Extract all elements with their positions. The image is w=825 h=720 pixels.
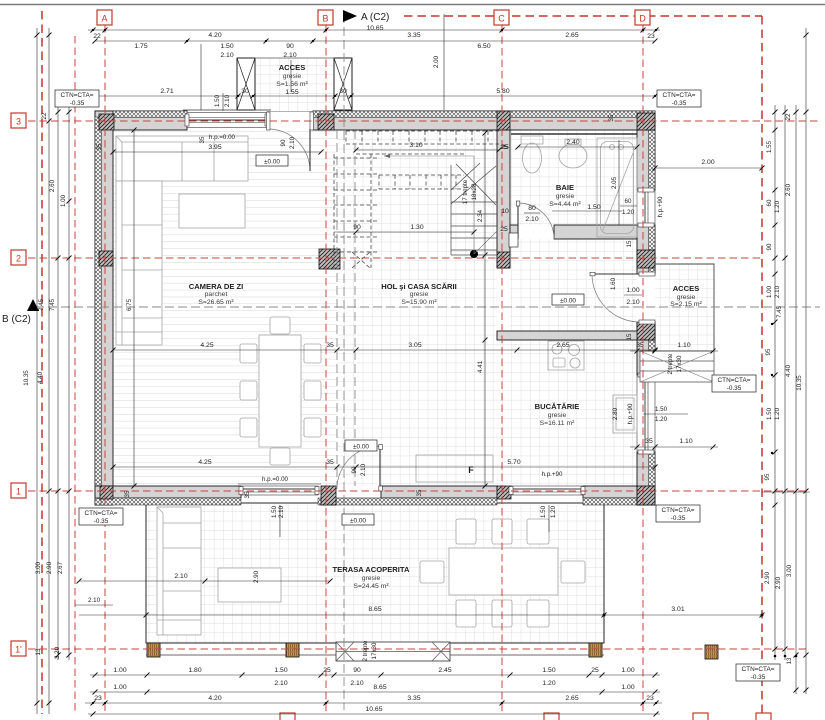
svg-text:2.10: 2.10 [774,285,781,298]
svg-text:1.60: 1.60 [610,277,617,290]
svg-text:2.80: 2.80 [612,407,619,420]
svg-text:2.10: 2.10 [224,94,231,107]
svg-text:A: A [101,14,107,24]
svg-text:3.35: 3.35 [407,32,420,39]
svg-text:S=2.15 m²: S=2.15 m² [670,301,702,308]
svg-text:30: 30 [241,88,249,95]
svg-text:1.50: 1.50 [542,667,555,674]
svg-text:3.20: 3.20 [54,646,61,659]
svg-text:22: 22 [785,113,792,120]
svg-text:23: 23 [647,33,655,40]
svg-text:-0.35: -0.35 [727,385,742,392]
svg-text:2.90: 2.90 [46,561,53,574]
svg-text:S=16.11 m²: S=16.11 m² [540,420,576,427]
svg-text:2.65: 2.65 [565,32,578,39]
svg-text:1.50: 1.50 [540,505,547,518]
svg-text:4.25: 4.25 [198,459,211,466]
svg-text:h.p.+90: h.p.+90 [657,196,664,217]
svg-text:2.10: 2.10 [278,505,285,518]
svg-text:S=15.90 m²: S=15.90 m² [401,299,437,306]
svg-text:-0.35: -0.35 [94,518,109,525]
svg-text:17x30: 17x30 [371,642,378,659]
svg-text:D: D [639,14,646,24]
svg-text:1.50: 1.50 [214,94,221,107]
svg-text:TERASA ACOPERITA: TERASA ACOPERITA [333,565,410,574]
svg-text:90: 90 [280,139,287,146]
svg-text:gresie: gresie [677,294,696,301]
svg-text:4.25: 4.25 [200,342,213,349]
svg-text:h.p.+90: h.p.+90 [542,471,563,478]
svg-text:S=24.45 m²: S=24.45 m² [353,583,389,590]
svg-text:CTN=CTA=: CTN=CTA= [662,507,695,514]
svg-text:-0.35: -0.35 [671,515,686,522]
svg-text:6.75: 6.75 [126,298,133,311]
svg-text:25: 25 [500,226,508,233]
svg-text:7.45: 7.45 [38,298,45,311]
svg-text:gresie: gresie [362,575,381,582]
svg-text:2.10: 2.10 [289,136,296,149]
svg-text:90: 90 [351,466,358,473]
svg-text:±0.00: ±0.00 [560,298,576,305]
svg-text:10.35: 10.35 [23,370,30,386]
svg-text:1.20: 1.20 [774,200,781,213]
svg-text:gresie: gresie [283,73,302,80]
svg-text:1.00: 1.00 [60,194,67,207]
svg-text:1: 1 [16,487,21,497]
svg-text:35: 35 [96,143,103,150]
svg-text:25: 25 [323,667,331,674]
svg-text:5.80: 5.80 [496,88,509,95]
svg-text:1.00: 1.00 [621,667,634,674]
svg-text:1.00: 1.00 [113,667,126,674]
svg-text:1.30: 1.30 [410,224,423,231]
svg-text:B: B [322,14,328,24]
svg-text:35: 35 [199,136,206,143]
svg-text:35: 35 [636,342,644,349]
svg-text:23: 23 [94,695,102,702]
svg-text:23: 23 [646,695,654,702]
svg-text:2.90: 2.90 [775,576,782,589]
svg-text:parchet: parchet [205,291,228,298]
svg-text:-0.35: -0.35 [672,100,687,107]
svg-text:2.90: 2.90 [253,570,260,583]
svg-text:2.40: 2.40 [566,139,579,146]
svg-text:-0.35: -0.35 [70,100,85,107]
svg-text:1.00: 1.00 [626,287,639,294]
svg-text:CAMERA DE ZI: CAMERA DE ZI [189,282,244,291]
svg-text:1.20: 1.20 [655,416,668,423]
svg-text:1.50: 1.50 [655,406,668,413]
svg-text:60: 60 [625,198,632,205]
svg-text:3.01: 3.01 [671,606,684,613]
svg-text:1.10: 1.10 [677,342,690,349]
svg-text:7.45: 7.45 [49,298,56,311]
svg-text:1.20: 1.20 [774,407,781,420]
svg-text:30: 30 [339,88,347,95]
svg-text:2.10: 2.10 [88,597,101,604]
svg-text:2 trepte: 2 trepte [667,353,674,375]
svg-text:60: 60 [766,199,773,206]
svg-text:2.71: 2.71 [160,88,173,95]
svg-text:2.10: 2.10 [174,573,187,580]
svg-text:4.40: 4.40 [37,371,44,384]
svg-text:2.00: 2.00 [701,159,714,166]
svg-text:ACCES: ACCES [279,63,306,72]
svg-text:4.41: 4.41 [477,360,484,373]
svg-text:10.65: 10.65 [366,25,383,32]
svg-text:13: 13 [786,657,793,664]
svg-text:2 trepte: 2 trepte [362,640,369,662]
svg-text:BUCĂTĂRIE: BUCĂTĂRIE [535,402,580,411]
svg-text:S=4.44 m²: S=4.44 m² [549,201,581,208]
svg-text:15: 15 [626,333,633,340]
svg-text:CTN=CTA=: CTN=CTA= [85,510,118,517]
svg-text:F: F [468,465,474,475]
svg-text:95: 95 [764,473,771,480]
svg-text:1.00: 1.00 [766,285,773,298]
svg-text:h.p.+90: h.p.+90 [627,403,634,424]
svg-text:B (C2): B (C2) [2,314,31,325]
svg-text:35: 35 [608,114,615,121]
svg-text:35: 35 [645,438,653,445]
svg-text:3.95: 3.95 [208,144,221,151]
svg-text:3.00: 3.00 [35,561,42,574]
svg-text:2.10: 2.10 [274,680,287,687]
svg-text:h.p.=0.00: h.p.=0.00 [209,134,236,141]
svg-text:1.55: 1.55 [285,89,298,96]
svg-text:2.60: 2.60 [49,179,56,192]
svg-text:3.35: 3.35 [407,695,420,702]
svg-text:3.05: 3.05 [408,342,421,349]
svg-text:gresie: gresie [556,193,575,200]
svg-text:10: 10 [501,208,509,215]
svg-text:3: 3 [16,117,21,127]
svg-text:CTN=CTA=: CTN=CTA= [718,377,751,384]
svg-text:22: 22 [41,112,48,119]
svg-text:13: 13 [35,648,42,655]
svg-text:1.50: 1.50 [220,43,233,50]
svg-text:2.60: 2.60 [785,183,792,196]
svg-text:35: 35 [416,489,423,496]
svg-text:2.65: 2.65 [565,695,578,702]
svg-text:2.45: 2.45 [438,667,451,674]
svg-text:1.50: 1.50 [587,204,600,211]
svg-text:35: 35 [326,342,334,349]
svg-text:2.67: 2.67 [57,561,64,574]
svg-text:10.35: 10.35 [796,375,803,391]
svg-text:3.10: 3.10 [409,142,422,149]
svg-text:1.20: 1.20 [622,209,635,216]
svg-text:90: 90 [286,43,294,50]
svg-text:1.80: 1.80 [188,667,201,674]
svg-text:ACCES: ACCES [673,284,700,293]
svg-text:35: 35 [124,490,131,497]
svg-text:2.10: 2.10 [350,680,363,687]
svg-text:2: 2 [16,254,21,264]
svg-text:2.65: 2.65 [556,342,569,349]
svg-text:4.40: 4.40 [785,364,792,377]
svg-text:17x30: 17x30 [676,355,683,372]
svg-text:C: C [498,14,505,24]
svg-text:BAIE: BAIE [556,183,574,192]
svg-text:35: 35 [244,491,251,498]
svg-text:90: 90 [766,243,773,250]
svg-text:2.34: 2.34 [477,209,484,222]
svg-text:35: 35 [326,459,334,466]
svg-text:HOL şi CASA SCĂRII: HOL şi CASA SCĂRII [381,282,457,291]
svg-text:-0.35: -0.35 [751,674,766,681]
svg-text:1.20: 1.20 [542,680,555,687]
svg-text:1.50: 1.50 [274,667,287,674]
svg-text:2.05: 2.05 [611,176,618,189]
svg-text:6.50: 6.50 [477,43,490,50]
svg-text:1': 1' [15,645,22,655]
svg-text:S=1.56 m²: S=1.56 m² [276,81,308,88]
svg-text:h.p.=0.00: h.p.=0.00 [262,476,289,483]
svg-text:CTN=CTA=: CTN=CTA= [663,92,696,99]
svg-text:2.10: 2.10 [626,299,639,306]
svg-text:95: 95 [765,348,772,355]
svg-text:1.00: 1.00 [113,684,126,691]
svg-text:4.20: 4.20 [208,32,221,39]
svg-text:5.70: 5.70 [507,459,520,466]
svg-text:80: 80 [528,205,536,212]
svg-text:1.55: 1.55 [766,140,773,153]
svg-text:25: 25 [500,144,508,151]
svg-text:4.20: 4.20 [208,695,221,702]
svg-text:8.65: 8.65 [373,684,386,691]
svg-text:gresie: gresie [410,291,429,298]
svg-text:10.65: 10.65 [365,706,382,713]
svg-text:8.65: 8.65 [368,606,381,613]
svg-text:2.90: 2.90 [764,571,771,584]
svg-text:1.75: 1.75 [134,43,147,50]
svg-text:±0.00: ±0.00 [353,444,369,451]
svg-text:3.00: 3.00 [786,564,793,577]
svg-text:gresie: gresie [548,412,567,419]
svg-text:±0.00: ±0.00 [264,159,280,166]
svg-text:2.10: 2.10 [283,52,296,59]
svg-text:15: 15 [626,240,633,247]
svg-text:2.10: 2.10 [525,216,538,223]
svg-text:90: 90 [353,667,361,674]
svg-text:1.00: 1.00 [621,684,634,691]
svg-text:1.50: 1.50 [766,407,773,420]
svg-text:CTN=CTA=: CTN=CTA= [742,666,775,673]
svg-text:1.20: 1.20 [550,505,557,518]
svg-text:1.10: 1.10 [679,438,692,445]
svg-text:A (C2): A (C2) [361,12,389,23]
svg-text:±0.00: ±0.00 [350,518,366,525]
svg-text:S=26.65 m²: S=26.65 m² [198,299,234,306]
svg-text:25: 25 [591,667,599,674]
svg-text:2.10: 2.10 [360,463,367,476]
svg-text:17 trepte: 17 trepte [462,179,469,204]
svg-text:CTN=CTA=: CTN=CTA= [61,92,94,99]
svg-text:1.50: 1.50 [271,505,278,518]
svg-text:18x28: 18x28 [471,183,478,200]
svg-text:7.45: 7.45 [776,305,783,318]
svg-text:2.10: 2.10 [220,52,233,59]
svg-text:90: 90 [353,224,361,231]
svg-text:2.00: 2.00 [433,55,440,68]
